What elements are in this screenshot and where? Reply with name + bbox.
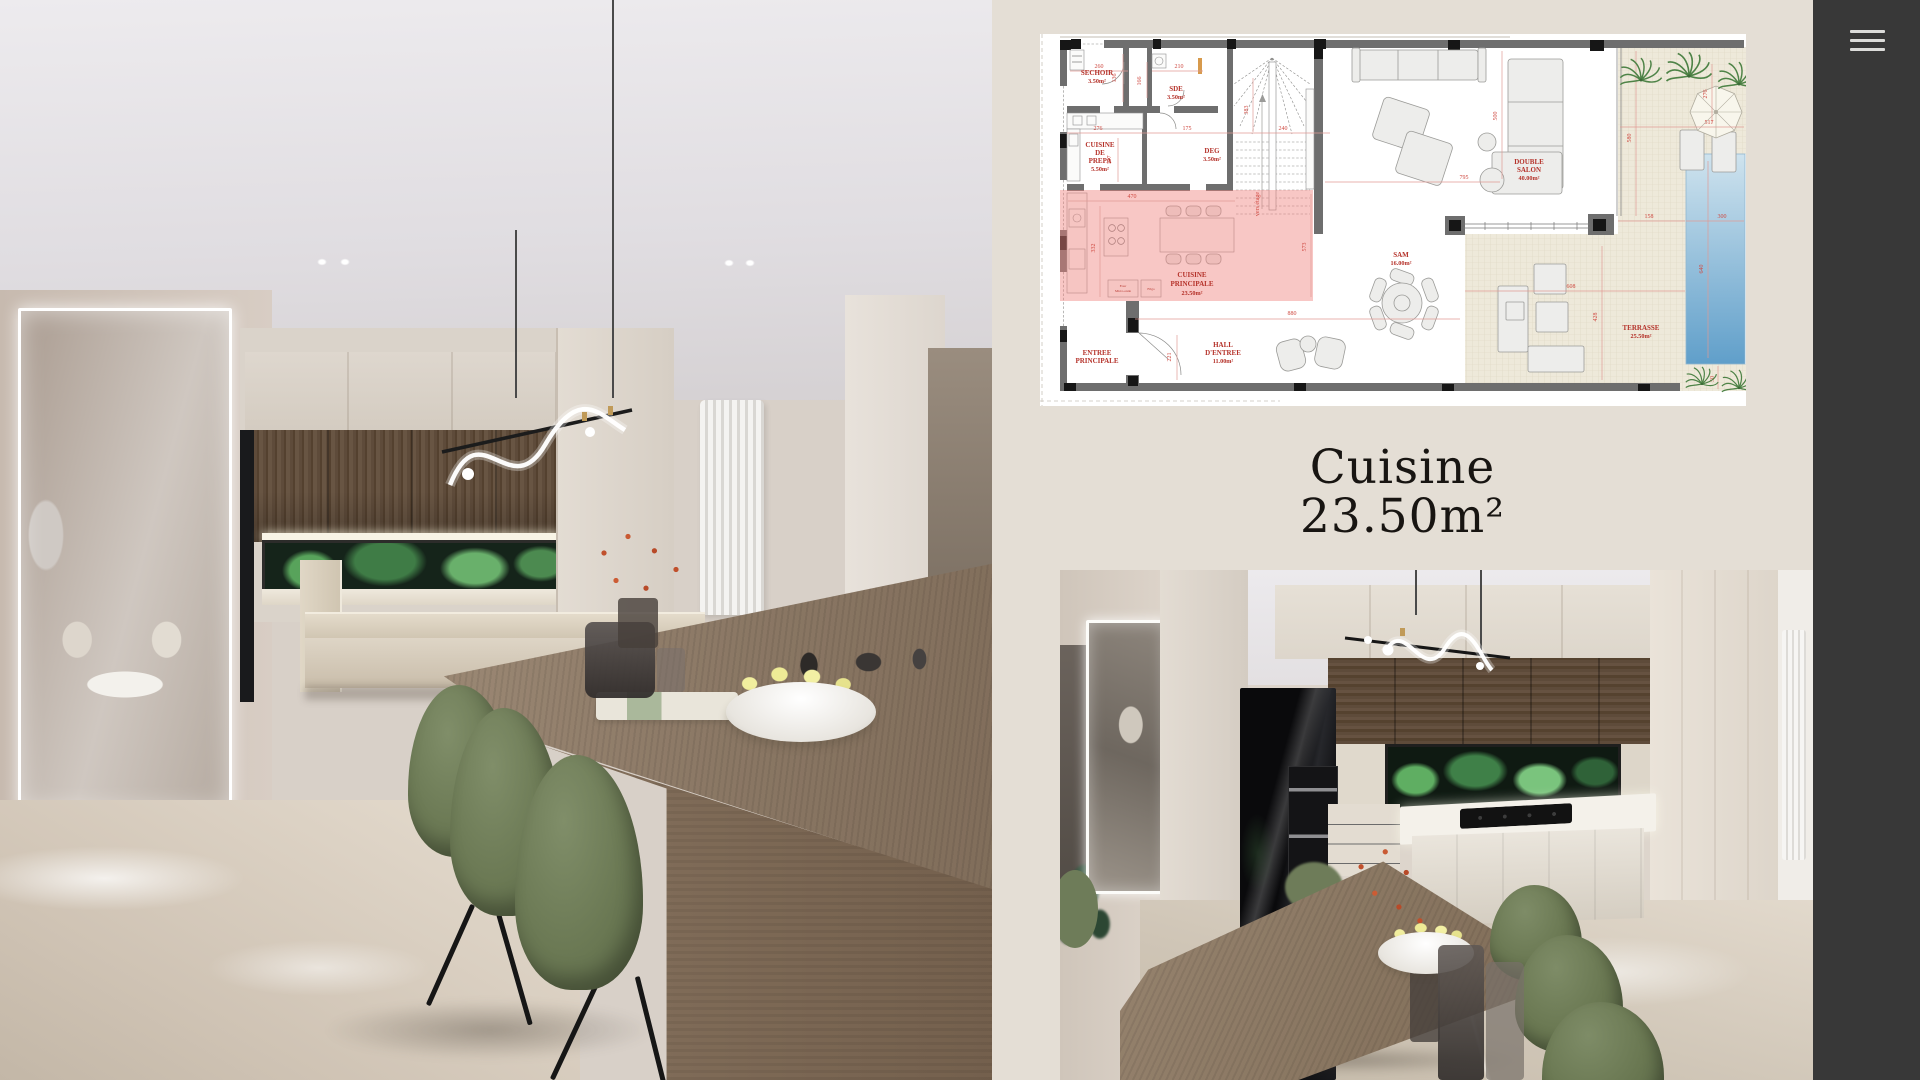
room-area-deg: 3.50m² bbox=[1203, 156, 1221, 163]
room-label-hall-2: D'ENTREE bbox=[1205, 349, 1241, 357]
room-label-prepa-2: DE bbox=[1095, 149, 1105, 157]
room-label-hall-1: HALL bbox=[1213, 341, 1233, 349]
dim-210: 210 bbox=[1175, 64, 1184, 70]
room-area-hall: 11.00m² bbox=[1213, 358, 1234, 365]
dim-428: 428 bbox=[1593, 313, 1599, 322]
dim-580: 580 bbox=[1627, 134, 1633, 143]
dim-795: 795 bbox=[1460, 175, 1469, 181]
lemon-bowl bbox=[726, 682, 876, 742]
room-area-sechoir: 3.50m² bbox=[1088, 78, 1106, 85]
room-label-prepa-3: PREPA bbox=[1089, 157, 1112, 165]
room-label-deg: DEG bbox=[1204, 147, 1220, 155]
smoked-glass-vase bbox=[1438, 945, 1484, 1080]
appliance-label-fridge: Frigo bbox=[1147, 287, 1155, 291]
room-label-sam: SAM bbox=[1393, 251, 1409, 259]
glass-vase bbox=[1410, 970, 1440, 1042]
dim-300: 300 bbox=[1718, 214, 1727, 220]
pendant-wire bbox=[515, 230, 517, 398]
room-label-sechoir: SECHOIR bbox=[1081, 69, 1114, 77]
dim-276: 276 bbox=[1094, 126, 1103, 132]
floorplan: 260 136 210 166 276 175 240 197 383 470 … bbox=[1040, 34, 1746, 406]
dim-500: 500 bbox=[1493, 112, 1499, 121]
photo-kitchen-island bbox=[1060, 570, 1813, 1080]
room-area-cuisine: 23.50m² bbox=[1182, 290, 1203, 297]
room-label-entree-1: ENTREE bbox=[1083, 349, 1112, 357]
room-area-prepa: 5.50m² bbox=[1091, 166, 1109, 173]
led-mirror-tall bbox=[18, 308, 232, 812]
room-area-sde: 3.50m² bbox=[1167, 94, 1185, 101]
radiator bbox=[1782, 630, 1806, 860]
room-area-terrasse: 25.50m² bbox=[1631, 333, 1652, 340]
dim-221: 221 bbox=[1167, 353, 1173, 362]
caption-area: 23.50m² bbox=[992, 493, 1813, 542]
room-label-entree-2: PRINCIPALE bbox=[1075, 357, 1118, 365]
dim-158: 158 bbox=[1645, 214, 1654, 220]
under-cabinet-light bbox=[262, 533, 562, 540]
plan-caption: Cuisine 23.50m² bbox=[992, 444, 1813, 542]
room-label-salon-2: SALON bbox=[1517, 166, 1541, 174]
dim-276b: 276 bbox=[1703, 90, 1709, 99]
sidebar bbox=[1813, 0, 1920, 1080]
room-label-cuisine-1: CUISINE bbox=[1177, 271, 1207, 279]
room-label-terrasse: TERRASSE bbox=[1623, 324, 1660, 332]
dim-517: 517 bbox=[1705, 120, 1714, 126]
stairs-direction-note: vers étage bbox=[1255, 192, 1261, 216]
appliance-label-oven-1: Four bbox=[1120, 284, 1127, 288]
photo-kitchen-dining bbox=[0, 0, 992, 1080]
led-mirror bbox=[1086, 620, 1168, 894]
page: 260 136 210 166 276 175 240 197 383 470 … bbox=[0, 0, 1920, 1080]
floorplan-svg: 260 136 210 166 276 175 240 197 383 470 … bbox=[1040, 34, 1746, 406]
dim-470: 470 bbox=[1128, 194, 1137, 200]
dim-166: 166 bbox=[1137, 77, 1143, 86]
room-area-sam: 16.00m² bbox=[1391, 260, 1412, 267]
room-label-cuisine-2: PRINCIPALE bbox=[1170, 280, 1213, 288]
dim-175: 175 bbox=[1183, 126, 1192, 132]
fridge-edge bbox=[240, 430, 254, 702]
dim-573: 573 bbox=[1302, 243, 1308, 252]
dim-608: 608 bbox=[1567, 284, 1576, 290]
neon-pendant-light bbox=[1330, 590, 1520, 700]
parasol bbox=[1690, 86, 1742, 138]
red-berry-sprig bbox=[580, 520, 700, 630]
smoked-glass-vase bbox=[1486, 962, 1524, 1080]
dim-640: 640 bbox=[1699, 265, 1705, 274]
room-area-salon: 40.00m² bbox=[1519, 175, 1540, 182]
appliance-label-oven-2: Micro-onde bbox=[1115, 289, 1132, 293]
radiator bbox=[700, 400, 764, 615]
dim-332: 332 bbox=[1091, 244, 1097, 253]
dim-880: 880 bbox=[1288, 311, 1297, 317]
swimming-pool bbox=[1686, 154, 1745, 364]
dim-240: 240 bbox=[1279, 126, 1288, 132]
glass bbox=[657, 648, 685, 692]
room-label-prepa-1: CUISINE bbox=[1085, 141, 1115, 149]
neon-pendant-light bbox=[440, 390, 640, 525]
hamburger-menu-icon[interactable] bbox=[1850, 28, 1885, 52]
pendant-wire bbox=[612, 0, 614, 398]
dim-383: 383 bbox=[1244, 106, 1250, 115]
room-label-salon-1: DOUBLE bbox=[1514, 158, 1544, 166]
caption-title: Cuisine bbox=[992, 444, 1813, 493]
room-label-sde: SDE bbox=[1169, 85, 1183, 93]
